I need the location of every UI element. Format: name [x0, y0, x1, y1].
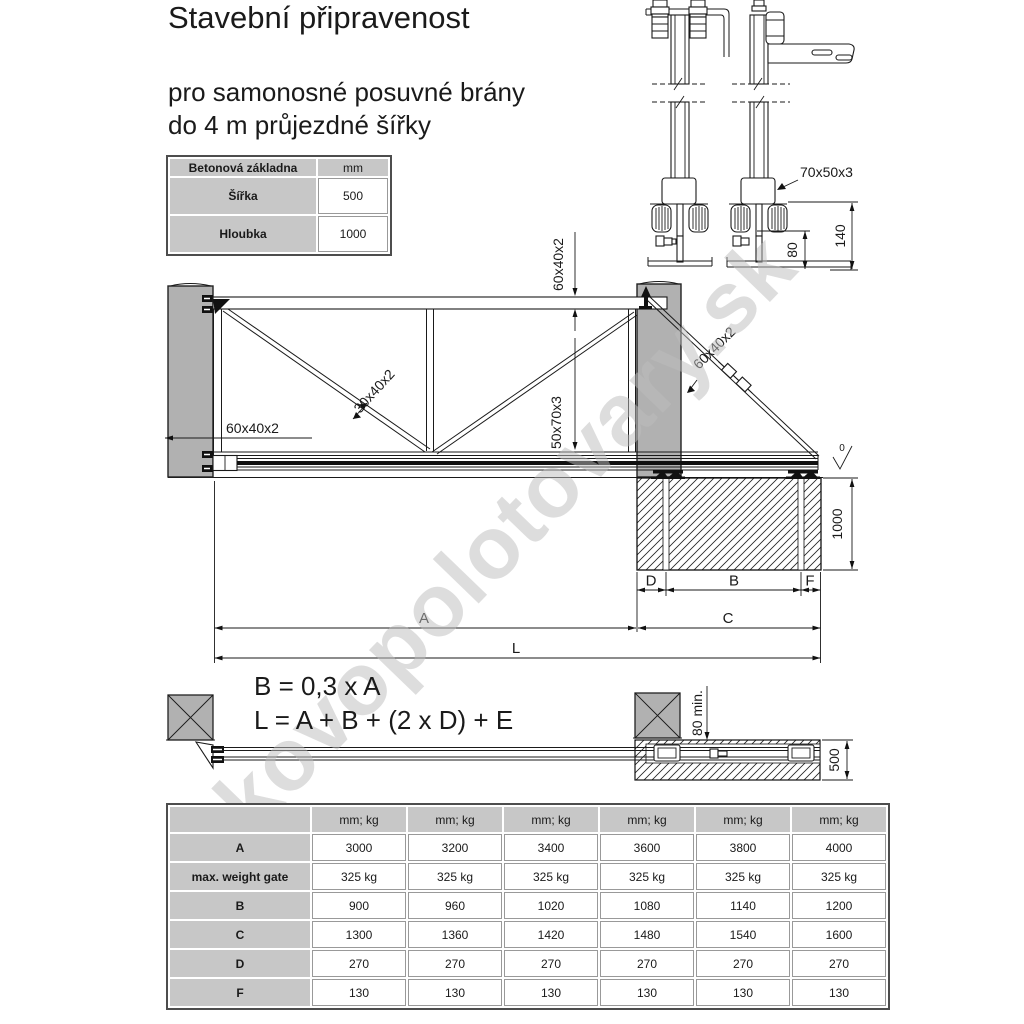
unit-header: mm; kg: [408, 807, 502, 832]
base-table-title: Betonová základna: [170, 159, 316, 176]
roller-carriage: [786, 470, 820, 479]
table-cell: 130: [408, 979, 502, 1006]
detail-front-view: [646, 0, 729, 266]
table-cell: 3600: [600, 834, 694, 861]
dim-f-label: F: [805, 573, 814, 590]
table-cell: 1540: [696, 921, 790, 948]
table-cell: 130: [696, 979, 790, 1006]
mount-detail-drawing: 70x50x3 140 80: [646, 0, 858, 270]
table-cell: 1000: [318, 216, 388, 252]
dim-a-label: A: [419, 610, 429, 627]
table-cell: 1080: [600, 892, 694, 919]
depth-label: 1000: [829, 508, 845, 539]
table-cell: 270: [792, 950, 886, 977]
width-label: 500: [826, 748, 842, 772]
formulas: B = 0,3 x A L = A + B + (2 x D) + E: [254, 670, 513, 738]
table-cell: 325 kg: [312, 863, 406, 890]
unit-header: mm; kg: [696, 807, 790, 832]
table-cell: 130: [312, 979, 406, 1006]
table-row: max. weight gate 325 kg 325 kg 325 kg 32…: [170, 863, 886, 890]
offset-label: 80 min.: [689, 690, 705, 736]
table-cell: 1480: [600, 921, 694, 948]
table-cell: 1600: [792, 921, 886, 948]
page: 60x40x2 30x40x2 50x70x3 60x40x2 60x40x2 …: [0, 0, 1024, 1024]
base-table-unit: mm: [318, 159, 388, 176]
dim-l-label: L: [512, 640, 520, 657]
detail-80-label: 80: [784, 242, 800, 258]
row-label: B: [170, 892, 310, 919]
table-cell: 4000: [792, 834, 886, 861]
table-cell: 1200: [792, 892, 886, 919]
gate-right-member: [629, 309, 636, 452]
dim-c-label: C: [723, 610, 734, 627]
gate-left-member: [214, 309, 222, 455]
dim-d-label: D: [646, 573, 657, 590]
subtitle-line: pro samonosné posuvné brány: [168, 76, 525, 109]
unit-header: mm; kg: [504, 807, 598, 832]
table-cell: 325 kg: [696, 863, 790, 890]
table-row: A 3000 3200 3400 3600 3800 4000: [170, 834, 886, 861]
top-rail-label: 60x40x2: [550, 238, 566, 291]
table-cell: 960: [408, 892, 502, 919]
table-cell: 130: [600, 979, 694, 1006]
detail-140-label: 140: [832, 224, 848, 248]
table-cell: 325 kg: [504, 863, 598, 890]
table-cell: 1360: [408, 921, 502, 948]
table-cell: 500: [318, 178, 388, 214]
gate-brace-right: [432, 312, 637, 454]
left-post: [168, 286, 213, 477]
rail-label: 50x70x3: [548, 396, 564, 449]
carrying-rail: [213, 456, 818, 471]
brace-label: 30x40x2: [350, 366, 397, 416]
formula-l: L = A + B + (2 x D) + E: [254, 704, 513, 738]
surface-label: 0: [839, 443, 845, 454]
table-cell: 3000: [312, 834, 406, 861]
table-cell: 130: [504, 979, 598, 1006]
table-cell: 1420: [504, 921, 598, 948]
subtitle-line: do 4 m průjezdné šířky: [168, 109, 525, 142]
row-label: F: [170, 979, 310, 1006]
concrete-base-table: Betonová základna mm Šířka 500 Hloubka 1…: [166, 155, 392, 256]
table-cell: 900: [312, 892, 406, 919]
table-cell: 325 kg: [600, 863, 694, 890]
corner-cell: [170, 807, 310, 832]
table-row: Šířka 500: [170, 178, 388, 214]
row-label: Šířka: [170, 178, 316, 214]
row-label: D: [170, 950, 310, 977]
table-cell: 270: [600, 950, 694, 977]
table-header-row: mm; kg mm; kg mm; kg mm; kg mm; kg mm; k…: [170, 807, 886, 832]
gate-center-member: [427, 309, 434, 451]
right-post: [637, 284, 681, 477]
table-cell: 325 kg: [408, 863, 502, 890]
table-row: Betonová základna mm: [170, 159, 388, 176]
row-label: max. weight gate: [170, 863, 310, 890]
table-row: F 130 130 130 130 130 130: [170, 979, 886, 1006]
row-label: C: [170, 921, 310, 948]
unit-header: mm; kg: [312, 807, 406, 832]
table-cell: 1140: [696, 892, 790, 919]
table-row: C 1300 1360 1420 1480 1540 1600: [170, 921, 886, 948]
table-cell: 1300: [312, 921, 406, 948]
detail-profile-label: 70x50x3: [800, 164, 853, 180]
table-row: B 900 960 1020 1080 1140 1200: [170, 892, 886, 919]
table-cell: 130: [792, 979, 886, 1006]
frame-label: 60x40x2: [226, 420, 279, 436]
guide-bracket: [196, 742, 213, 768]
row-label: A: [170, 834, 310, 861]
table-cell: 270: [408, 950, 502, 977]
gate-top-rail: [213, 297, 667, 309]
unit-header: mm; kg: [792, 807, 886, 832]
gate-spec-table: mm; kg mm; kg mm; kg mm; kg mm; kg mm; k…: [166, 803, 890, 1010]
table-cell: 270: [504, 950, 598, 977]
anchor-channel: [663, 478, 669, 570]
table-cell: 270: [312, 950, 406, 977]
formula-b: B = 0,3 x A: [254, 670, 513, 704]
table-cell: 270: [696, 950, 790, 977]
page-subtitle: pro samonosné posuvné brány do 4 m průje…: [168, 76, 525, 141]
gate-frame: [213, 286, 820, 479]
row-label: Hloubka: [170, 216, 316, 252]
table-cell: 3400: [504, 834, 598, 861]
table-cell: 3200: [408, 834, 502, 861]
page-title: Stavební připravenost: [168, 0, 470, 36]
table-row: Hloubka 1000: [170, 216, 388, 252]
dim-b-label: B: [729, 573, 739, 590]
unit-header: mm; kg: [600, 807, 694, 832]
table-cell: 3800: [696, 834, 790, 861]
table-cell: 325 kg: [792, 863, 886, 890]
table-row: D 270 270 270 270 270 270: [170, 950, 886, 977]
table-cell: 1020: [504, 892, 598, 919]
anchor-channel: [798, 478, 804, 570]
main-elevation-drawing: 60x40x2 30x40x2 50x70x3 60x40x2 60x40x2 …: [165, 232, 858, 663]
